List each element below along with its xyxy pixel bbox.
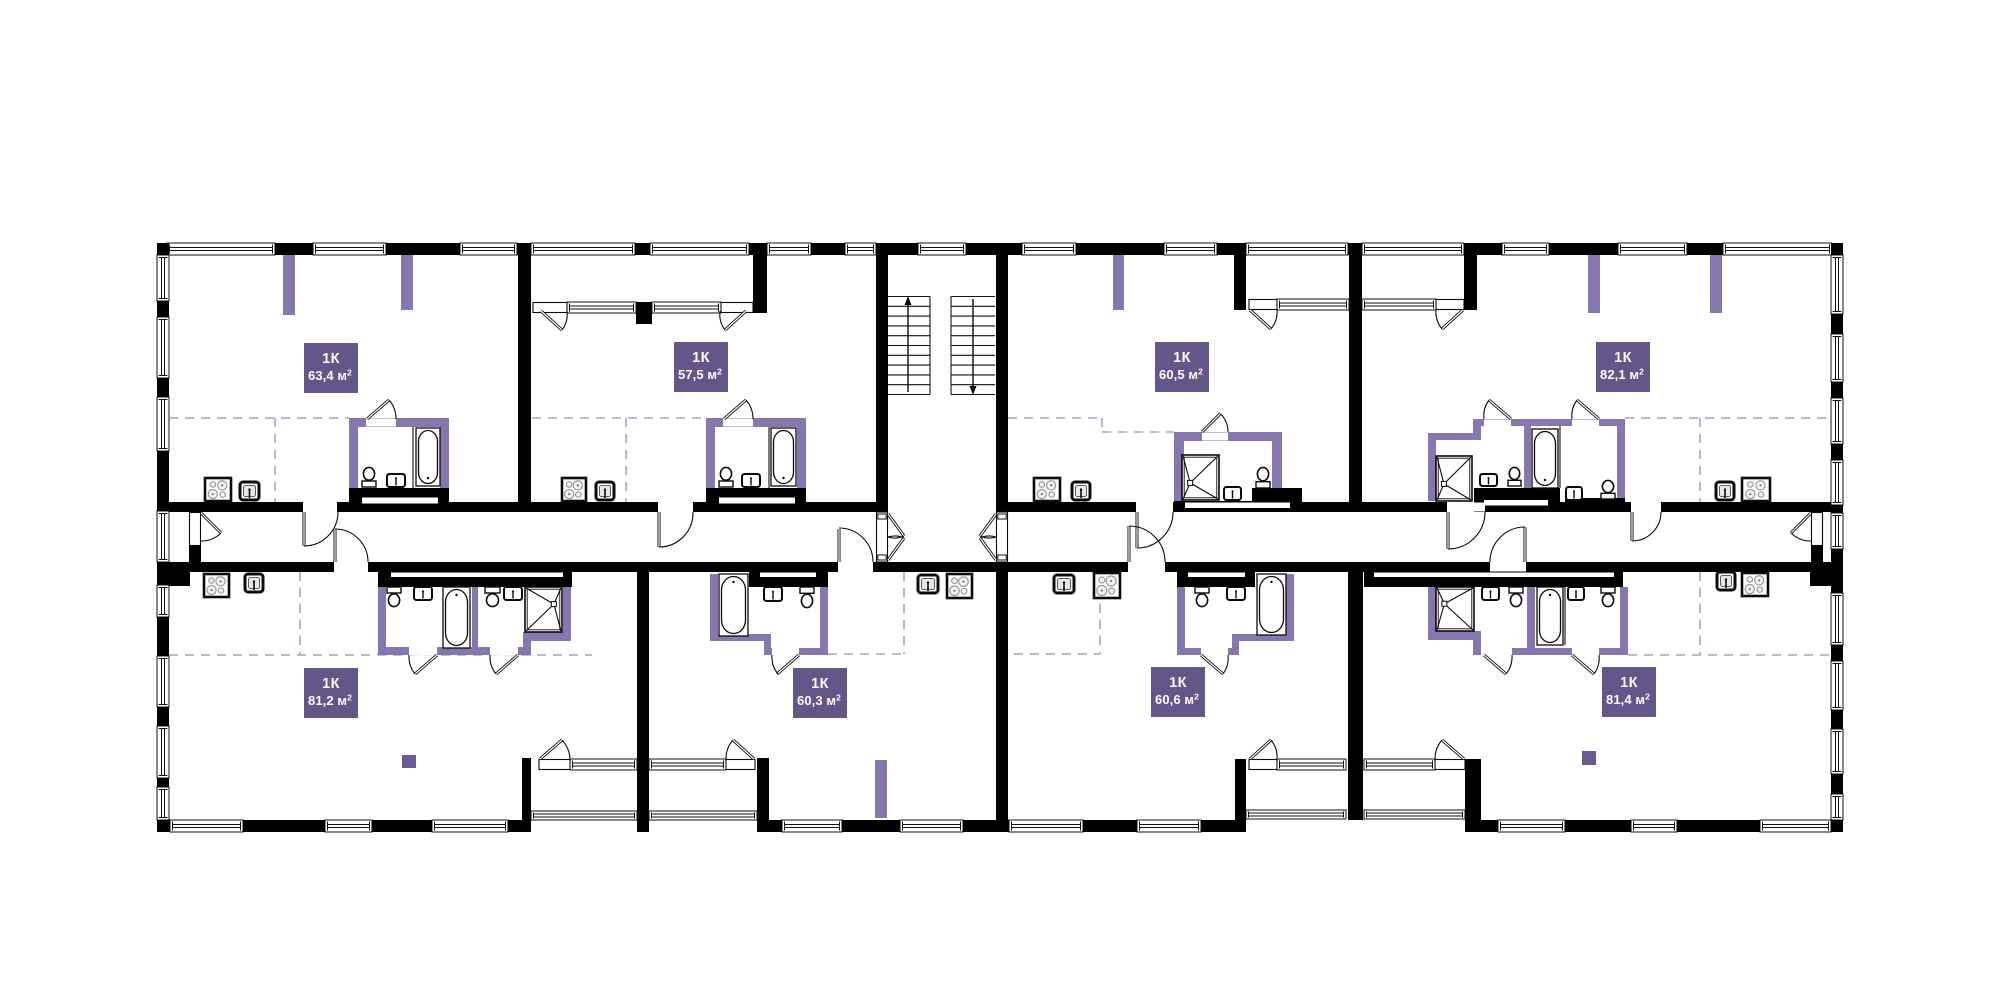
svg-text:1К: 1К [692, 350, 710, 366]
svg-text:60,6 м2: 60,6 м2 [1155, 692, 1199, 708]
svg-text:57,5 м2: 57,5 м2 [678, 367, 722, 383]
svg-text:60,3 м2: 60,3 м2 [797, 693, 841, 709]
svg-text:1К: 1К [811, 676, 829, 692]
svg-text:81,2 м2: 81,2 м2 [308, 693, 352, 709]
svg-text:1К: 1К [1169, 675, 1187, 691]
svg-text:82,1 м2: 82,1 м2 [1600, 367, 1644, 383]
svg-text:1К: 1К [1614, 350, 1632, 366]
svg-text:60,5 м2: 60,5 м2 [1159, 367, 1203, 383]
svg-text:1К: 1К [322, 351, 340, 367]
svg-text:63,4 м2: 63,4 м2 [308, 368, 352, 384]
svg-text:81,4 м2: 81,4 м2 [1606, 692, 1650, 708]
svg-text:1К: 1К [1620, 675, 1638, 691]
svg-text:1К: 1К [1173, 350, 1191, 366]
svg-text:1К: 1К [322, 676, 340, 692]
